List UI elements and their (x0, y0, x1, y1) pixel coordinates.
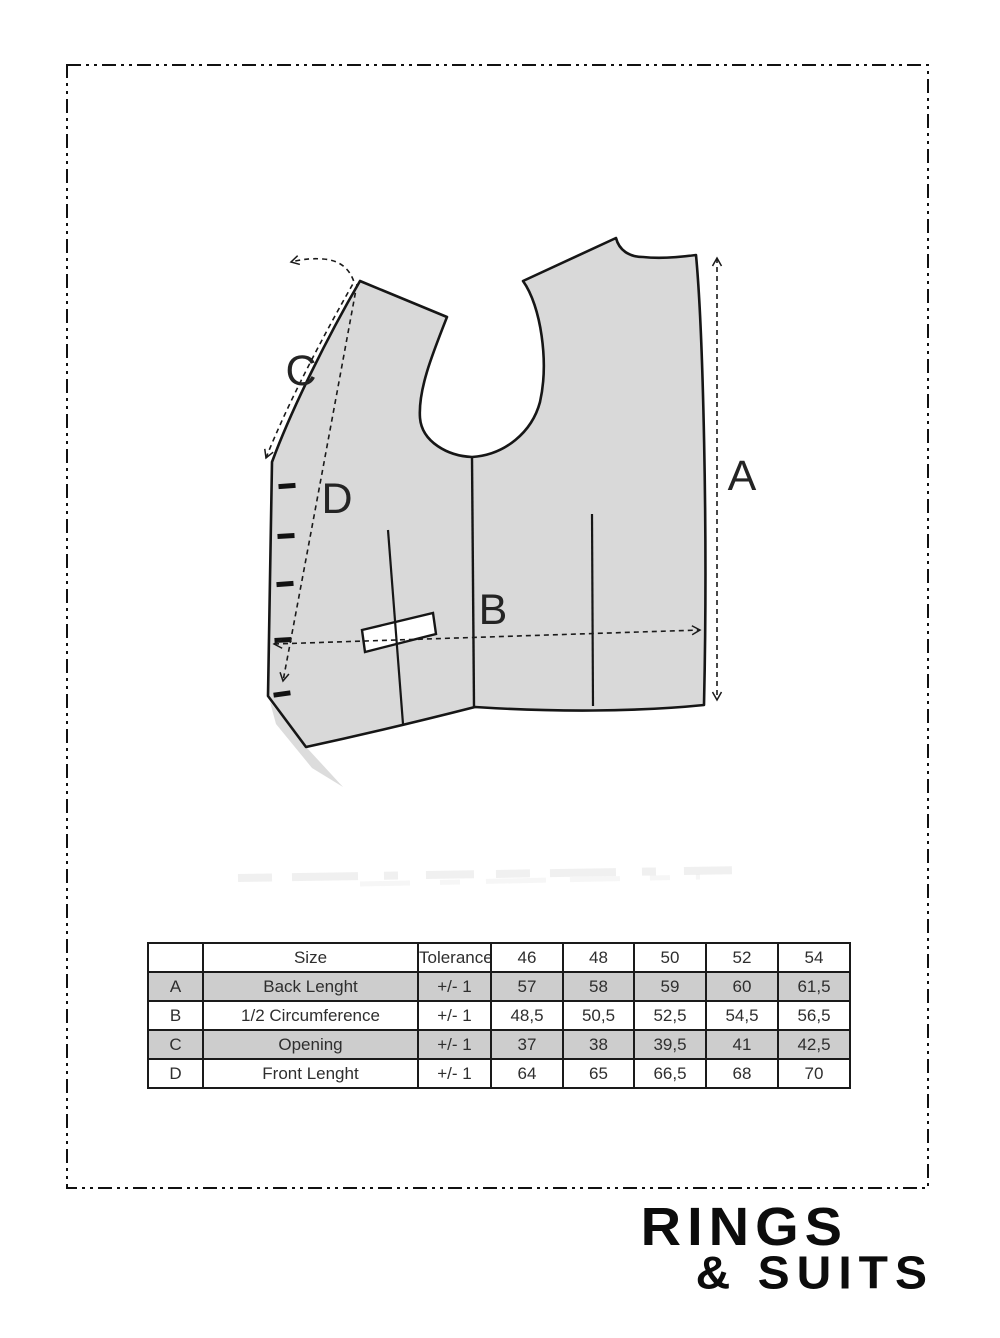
row-tolerance: +/- 1 (418, 1059, 491, 1088)
row-letter: A (148, 972, 203, 1001)
table-row-front-length: D Front Lenght +/- 1 64 65 66,5 68 70 (148, 1059, 850, 1088)
row-tolerance: +/- 1 (418, 1030, 491, 1059)
table-header-row: Size Tolerance 46 48 50 52 54 (148, 943, 850, 972)
label-c: C (285, 347, 316, 395)
row-label: Front Lenght (203, 1059, 418, 1088)
value-cell: 39,5 (634, 1030, 706, 1059)
vest-measurement-diagram: C D B A (0, 0, 1000, 1338)
header-size-50: 50 (634, 943, 706, 972)
row-label: Opening (203, 1030, 418, 1059)
value-cell: 52,5 (634, 1001, 706, 1030)
size-table: Size Tolerance 46 48 50 52 54 A Back Len… (147, 942, 851, 1089)
value-cell: 41 (706, 1030, 778, 1059)
value-cell: 50,5 (563, 1001, 634, 1030)
value-cell: 38 (563, 1030, 634, 1059)
size-guide-page: C D B A Size Tolerance 46 48 50 52 54 A … (0, 0, 1000, 1338)
header-size-46: 46 (491, 943, 563, 972)
brand-logo-line2: & SUITS (696, 1247, 934, 1300)
value-cell: 42,5 (778, 1030, 850, 1059)
table-row-back-length: A Back Lenght +/- 1 57 58 59 60 61,5 (148, 972, 850, 1001)
value-cell: 58 (563, 972, 634, 1001)
row-letter: C (148, 1030, 203, 1059)
label-d: D (321, 475, 352, 523)
ghost-smudge (238, 870, 748, 884)
back-dart-line (592, 514, 593, 706)
row-tolerance: +/- 1 (418, 1001, 491, 1030)
value-cell: 56,5 (778, 1001, 850, 1030)
header-size: Size (203, 943, 418, 972)
value-cell: 60 (706, 972, 778, 1001)
header-size-54: 54 (778, 943, 850, 972)
header-tolerance: Tolerance (418, 943, 491, 972)
row-letter: D (148, 1059, 203, 1088)
header-size-48: 48 (563, 943, 634, 972)
button-mark (274, 637, 291, 643)
row-tolerance: +/- 1 (418, 972, 491, 1001)
table-row-opening: C Opening +/- 1 37 38 39,5 41 42,5 (148, 1030, 850, 1059)
value-cell: 64 (491, 1059, 563, 1088)
label-b: B (479, 586, 508, 634)
table-row-circumference: B 1/2 Circumference +/- 1 48,5 50,5 52,5… (148, 1001, 850, 1030)
value-cell: 68 (706, 1059, 778, 1088)
value-cell: 48,5 (491, 1001, 563, 1030)
header-size-52: 52 (706, 943, 778, 972)
row-label: 1/2 Circumference (203, 1001, 418, 1030)
value-cell: 57 (491, 972, 563, 1001)
value-cell: 61,5 (778, 972, 850, 1001)
value-cell: 37 (491, 1030, 563, 1059)
value-cell: 65 (563, 1059, 634, 1088)
value-cell: 59 (634, 972, 706, 1001)
value-cell: 70 (778, 1059, 850, 1088)
value-cell: 54,5 (706, 1001, 778, 1030)
label-a: A (728, 452, 757, 500)
row-letter: B (148, 1001, 203, 1030)
value-cell: 66,5 (634, 1059, 706, 1088)
button-mark (277, 533, 294, 539)
header-corner-cell (148, 943, 203, 972)
row-label: Back Lenght (203, 972, 418, 1001)
